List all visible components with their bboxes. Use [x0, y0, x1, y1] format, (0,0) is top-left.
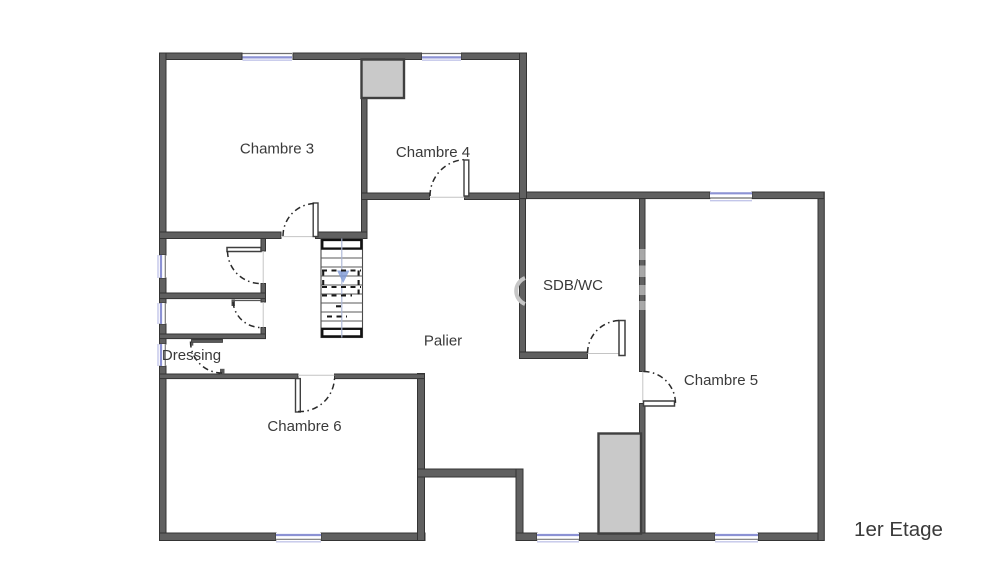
svg-text:1er Etage: 1er Etage [854, 518, 943, 541]
svg-text:Chambre 6: Chambre 6 [267, 418, 341, 435]
svg-text:Chambre 4: Chambre 4 [396, 144, 470, 161]
svg-text:Palier: Palier [424, 333, 462, 350]
svg-text:SDB/WC: SDB/WC [543, 277, 603, 294]
svg-text:Chambre 3: Chambre 3 [240, 141, 314, 158]
svg-text:Chambre 5: Chambre 5 [684, 372, 758, 389]
svg-text:Dressing: Dressing [162, 347, 221, 364]
